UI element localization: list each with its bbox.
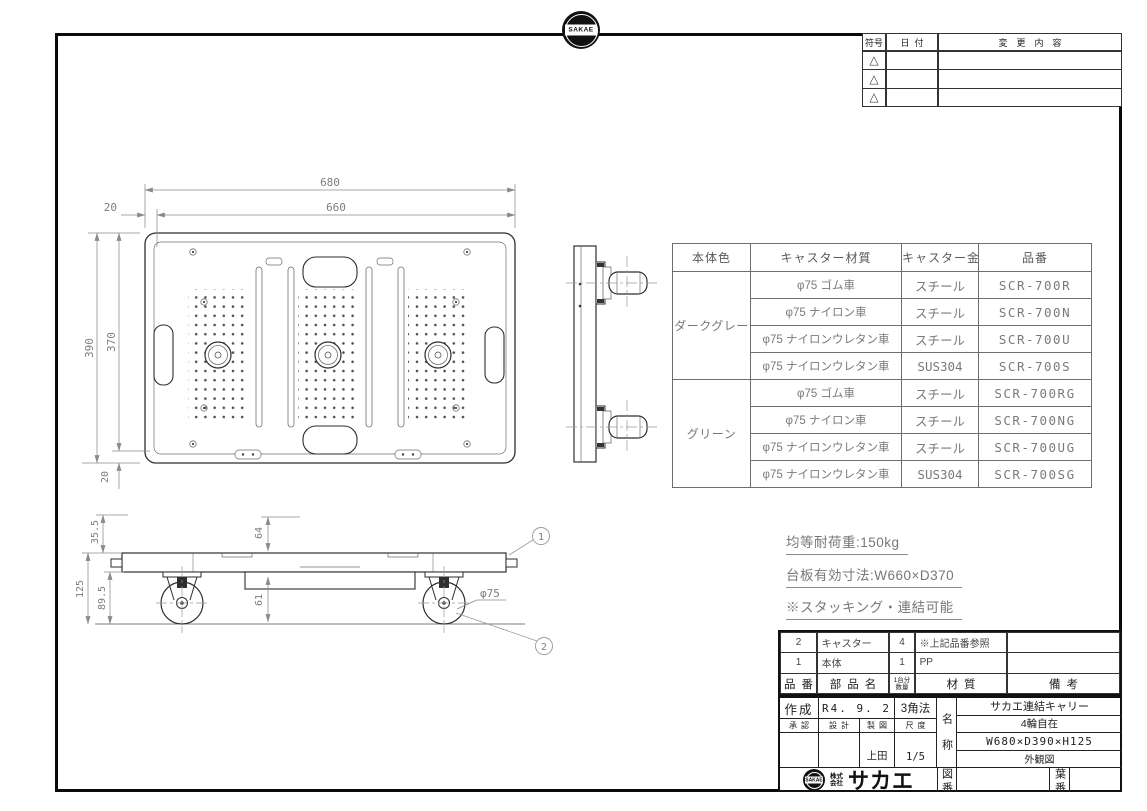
dim-390-label: 390: [83, 338, 96, 358]
sakae-logo-badge-icon: SAKAE: [562, 11, 600, 49]
name-label: 名称: [937, 698, 957, 768]
design-label: 設計: [819, 719, 860, 733]
part-number-cell: SCR-700R: [979, 272, 1092, 299]
rev-header-content: 変更内容: [938, 33, 1123, 52]
parts-list-table: 2 キャスター 4 ※上記品番参照 1 本体 1 PP 品番 部品名 1台分 数…: [778, 630, 1122, 696]
body-color-cell: グリーン: [673, 380, 751, 488]
balloon-2: 2: [456, 613, 553, 655]
dim-660-label: 660: [326, 201, 346, 214]
approve-label: 承認: [780, 719, 819, 733]
plist-header-note: 備考: [1007, 673, 1121, 694]
drawing-no-label: 図番: [937, 768, 957, 792]
table-row: グリーン φ75 ゴム車 スチール SCR-700RG: [673, 380, 1092, 407]
plist-header-qty-line2: 数量: [896, 684, 909, 691]
dim-89-5-label: 89.5: [97, 586, 108, 610]
badge-text: SAKAE: [565, 25, 597, 36]
drawing-sheet: 680 660 20 390 370 20 35.5 125 89.5 64 6…: [0, 0, 1147, 811]
handle-slot-left: [154, 325, 173, 385]
part-name-cell: キャスター: [817, 632, 890, 653]
material-cell: φ75 ゴム車: [751, 380, 902, 407]
part-note-cell: [1007, 652, 1121, 673]
rev-date-cell: [886, 88, 939, 107]
plist-header-material: 材質: [915, 673, 1008, 694]
part-material-cell: PP: [915, 652, 1008, 673]
caster-boss: [205, 342, 231, 368]
created-date: R4. 9. 2: [819, 698, 895, 719]
fitting-cell: スチール: [902, 272, 979, 299]
sakae-badge-icon: SAKAE: [803, 769, 825, 791]
part-name-cell: 本体: [817, 652, 890, 673]
draft-label: 製図: [860, 719, 895, 733]
balloon-1: 1: [509, 528, 550, 556]
drawing-no-cell: [957, 768, 1050, 792]
dim-370-label: 370: [105, 332, 118, 352]
dim-20-top-label: 20: [104, 201, 117, 214]
top-view: [145, 233, 515, 463]
plist-header-qty: 1台分 数量: [889, 673, 916, 694]
part-number-cell: SCR-700UG: [979, 434, 1092, 461]
rev-symbol-icon: △: [862, 51, 887, 70]
plist-header-name: 部品名: [817, 673, 890, 694]
vt-header-caster-fitting: キャスター金具: [902, 244, 979, 272]
part-number-cell: SCR-700NG: [979, 407, 1092, 434]
part-number-cell: SCR-700U: [979, 326, 1092, 353]
projection-method: 3角法: [895, 698, 937, 719]
sheet-no-cell: [1070, 768, 1122, 792]
body-color-cell: ダークグレー: [673, 272, 751, 380]
vt-header-body-color: 本体色: [673, 244, 751, 272]
rev-date-cell: [886, 51, 939, 70]
fitting-cell: スチール: [902, 299, 979, 326]
material-cell: φ75 ナイロン車: [751, 299, 902, 326]
notes: 均等耐荷重:150kg 台板有効寸法:W660×D370 ※スタッキング・連結可…: [786, 531, 962, 629]
sheet-no-label: 葉番: [1050, 768, 1070, 792]
product-spec-wheels: 4輪自在: [957, 716, 1122, 734]
fitting-cell: SUS304: [902, 353, 979, 380]
material-cell: φ75 ゴム車: [751, 272, 902, 299]
end-view: [566, 246, 660, 462]
note-load-capacity: 均等耐荷重:150kg: [786, 531, 908, 555]
title-block: 作成 R4. 9. 2 3角法 承認 設計 製図 尺度 上田 1/5 SAKAE…: [778, 696, 1122, 792]
note-stacking: ※スタッキング・連結可能: [786, 596, 962, 620]
revision-table: 符号 日付 変更内容 △ △ △: [862, 33, 1122, 107]
rev-header-symbol: 符号: [862, 33, 887, 52]
drawing-type: 外観図: [957, 751, 1122, 769]
side-view: [95, 553, 525, 633]
part-number-cell: SCR-700N: [979, 299, 1092, 326]
scale-label: 尺度: [895, 719, 937, 733]
vt-header-part-number: 品番: [979, 244, 1092, 272]
part-qty-cell: 1: [889, 652, 916, 673]
rev-content-cell: [938, 88, 1123, 107]
under-frame: [245, 572, 415, 589]
side-view-caster-rear: [418, 566, 470, 633]
rev-content-cell: [938, 51, 1123, 70]
part-material-cell: ※上記品番参照: [915, 632, 1008, 653]
rev-content-cell: [938, 69, 1123, 88]
dim-61-label: 61: [254, 594, 265, 606]
svg-text:2: 2: [541, 642, 547, 653]
scale-value: 1/5: [895, 733, 937, 768]
part-number-cell: SCR-700SG: [979, 461, 1092, 488]
material-cell: φ75 ナイロンウレタン車: [751, 434, 902, 461]
material-cell: φ75 ナイロンウレタン車: [751, 461, 902, 488]
dim-125-label: 125: [75, 580, 86, 598]
table-row: ダークグレー φ75 ゴム車 スチール SCR-700R: [673, 272, 1092, 299]
design-cell: [819, 733, 860, 768]
dim-680-label: 680: [320, 176, 340, 189]
dim-35-5-label: 35.5: [90, 520, 101, 544]
company-prefix-line1: 株式: [830, 773, 843, 780]
part-note-cell: [1007, 632, 1121, 653]
fitting-cell: スチール: [902, 407, 979, 434]
rev-header-date: 日付: [886, 33, 939, 52]
part-number-cell: SCR-700S: [979, 353, 1092, 380]
company-logo: SAKAE 株式 会社 サカエ: [780, 768, 938, 792]
rev-symbol-icon: △: [862, 88, 887, 107]
company-prefix: 株式 会社: [830, 773, 843, 787]
material-cell: φ75 ナイロンウレタン車: [751, 353, 902, 380]
rev-date-cell: [886, 69, 939, 88]
plist-header-qty-line1: 1台分: [894, 677, 911, 684]
vt-header-caster-material: キャスター材質: [751, 244, 902, 272]
approve-cell: [780, 733, 819, 768]
company-name: サカエ: [848, 764, 914, 796]
fitting-cell: スチール: [902, 326, 979, 353]
dim-20-bottom-label: 20: [100, 471, 111, 483]
product-name: サカエ連結キャリー: [957, 698, 1122, 716]
fitting-cell: SUS304: [902, 461, 979, 488]
material-cell: φ75 ナイロン車: [751, 407, 902, 434]
note-deck-size: 台板有効寸法:W660×D370: [786, 564, 962, 588]
svg-text:1: 1: [538, 532, 544, 543]
material-cell: φ75 ナイロンウレタン車: [751, 326, 902, 353]
caster-boss: [425, 342, 451, 368]
part-no-cell: 1: [780, 652, 818, 673]
handle-slot-right: [485, 327, 504, 383]
stacking-cutout-top: [303, 257, 357, 287]
name-rows: サカエ連結キャリー 4輪自在 W680×D390×H125 外観図: [957, 698, 1122, 768]
side-view-caster-front: [156, 566, 208, 633]
part-qty-cell: 4: [889, 632, 916, 653]
company-prefix-line2: 会社: [830, 780, 843, 787]
badge-text: SAKAE: [805, 777, 823, 784]
fitting-cell: スチール: [902, 380, 979, 407]
stacking-cutout-bottom: [303, 426, 357, 454]
part-number-cell: SCR-700RG: [979, 380, 1092, 407]
dim-wheel-dia-label: φ75: [480, 587, 500, 600]
product-spec-size: W680×D390×H125: [957, 733, 1122, 751]
plist-header-no: 品番: [780, 673, 818, 694]
fitting-cell: スチール: [902, 434, 979, 461]
variant-header-row: 本体色 キャスター材質 キャスター金具 品番: [673, 244, 1092, 272]
variant-table: 本体色 キャスター材質 キャスター金具 品番 ダークグレー φ75 ゴム車 スチ…: [672, 243, 1092, 488]
rev-symbol-icon: △: [862, 69, 887, 88]
dim-64-label: 64: [254, 527, 265, 539]
created-label: 作成: [780, 698, 819, 719]
drafter-name: 上田: [860, 733, 895, 768]
caster-boss: [315, 342, 341, 368]
part-no-cell: 2: [780, 632, 818, 653]
